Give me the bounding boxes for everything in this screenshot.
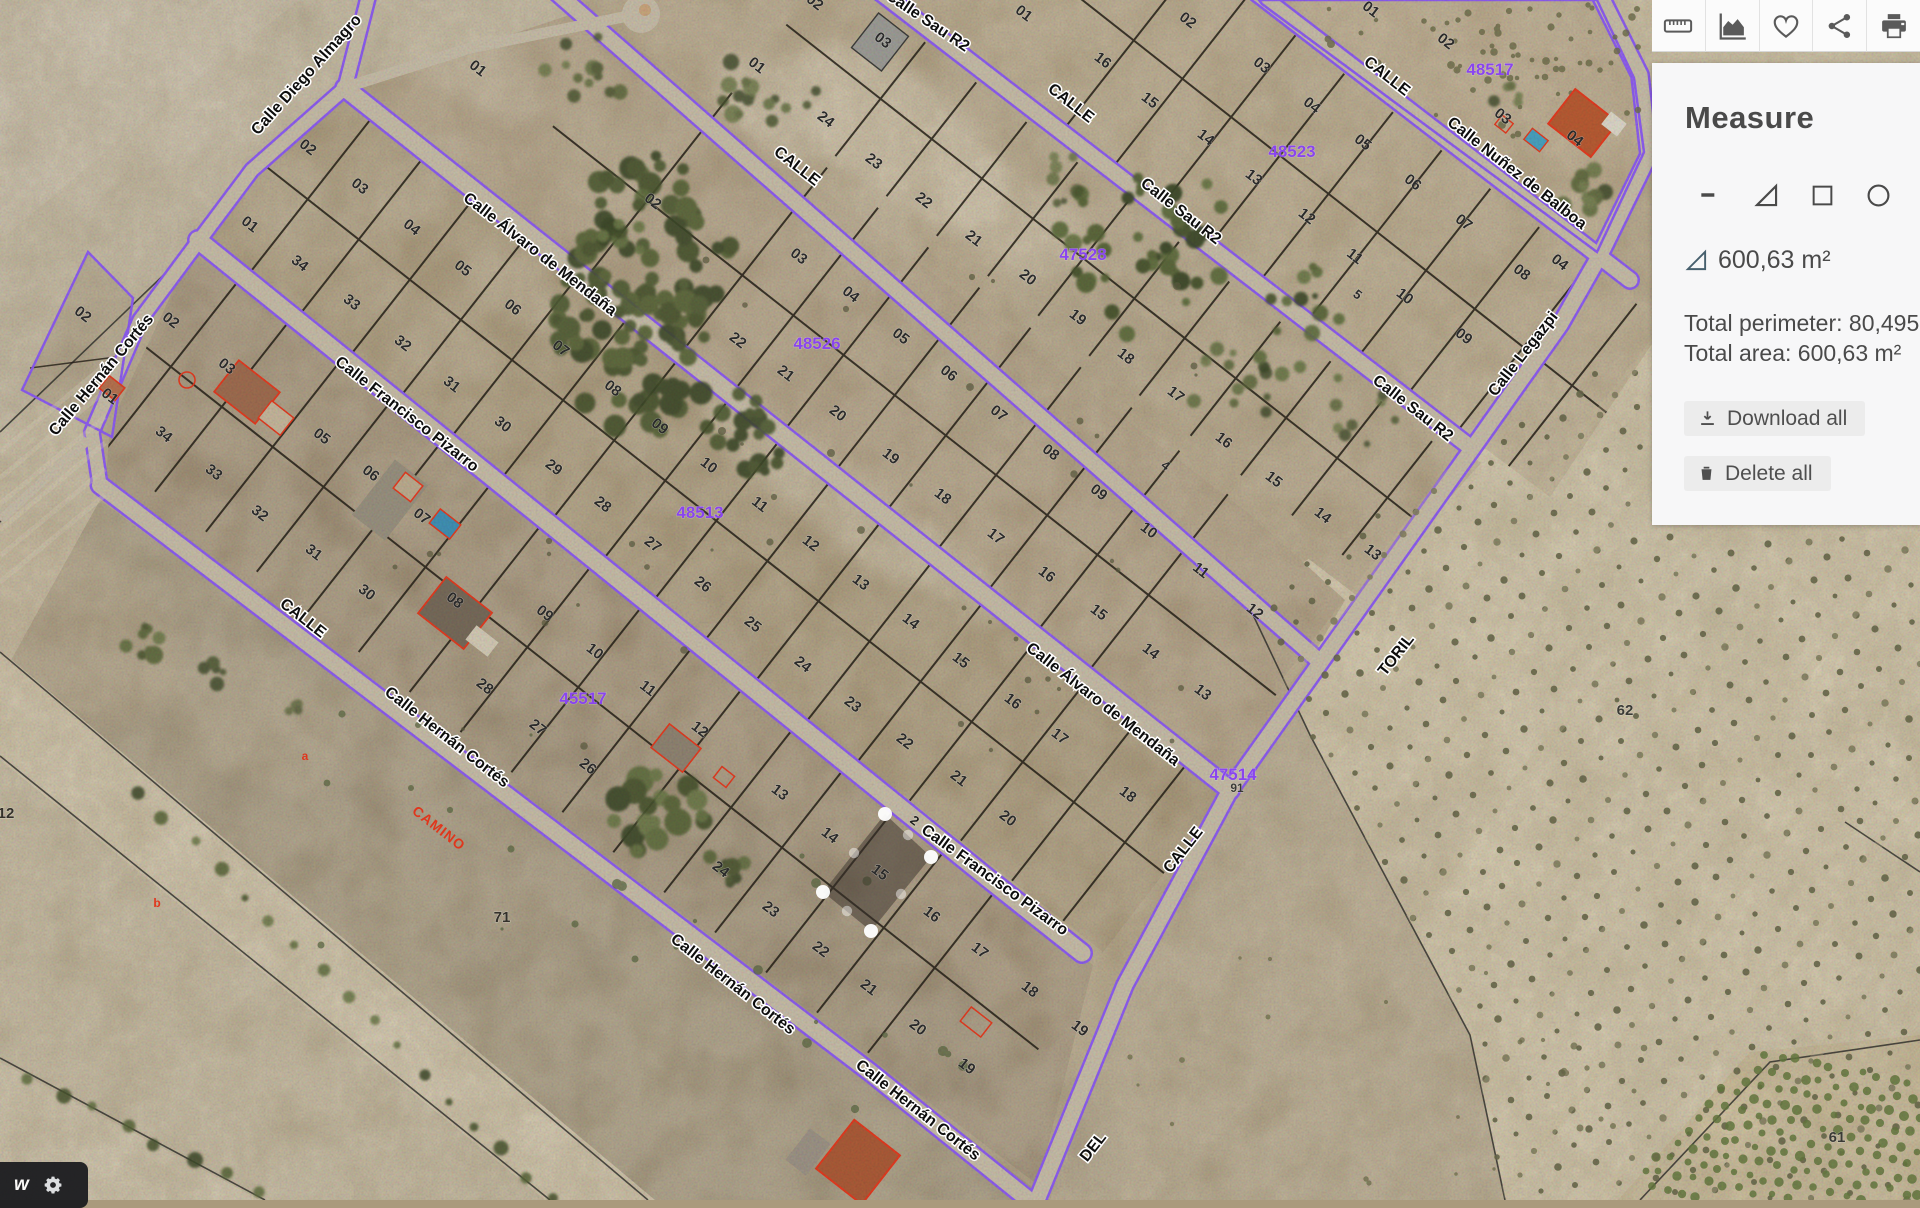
svg-text:47514: 47514 <box>1209 765 1257 784</box>
svg-text:71: 71 <box>494 909 511 926</box>
svg-text:62: 62 <box>1617 702 1634 719</box>
svg-text:45517: 45517 <box>559 689 606 708</box>
svg-text:47528: 47528 <box>1059 245 1106 264</box>
svg-text:48523: 48523 <box>1268 142 1315 161</box>
svg-text:a: a <box>302 749 309 763</box>
svg-text:48526: 48526 <box>793 334 840 353</box>
svg-text:12: 12 <box>0 805 14 822</box>
svg-text:b: b <box>153 896 160 910</box>
svg-text:61: 61 <box>1829 1129 1846 1146</box>
svg-text:48517: 48517 <box>1466 60 1513 79</box>
svg-text:48513: 48513 <box>676 503 723 522</box>
